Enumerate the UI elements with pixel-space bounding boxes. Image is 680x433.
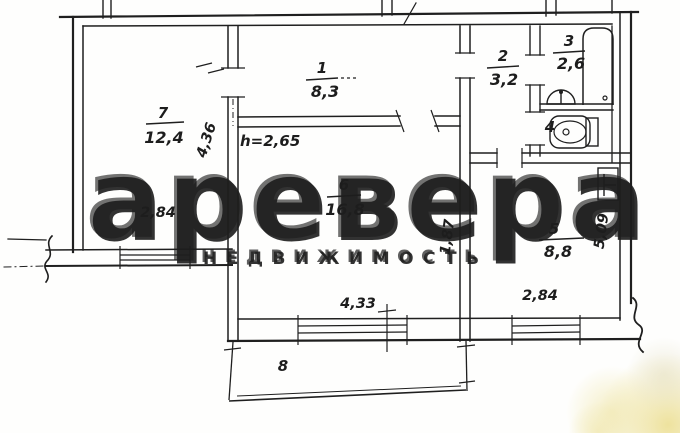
floor-plan-scan: 7 12,4 1 8,3 2 3,2 3 2,6 4 6 16,8 5 8,8 … [0,0,680,433]
dim-room5-width: 2,84 [522,288,558,304]
room2-number: 2 [498,47,508,65]
watermark: аревера аревера НЕДВИЖИМОСТЬ НЕДВИЖИМОСТ… [85,134,650,269]
room1-number: 1 [317,59,327,77]
watermark-caption: НЕДВИЖИМОСТЬ [201,247,487,267]
room3-number: 3 [564,32,574,50]
room7-number: 7 [158,104,169,122]
room1-area: 8,3 [311,82,339,101]
floor-plan-svg: 7 12,4 1 8,3 2 3,2 3 2,6 4 6 16,8 5 8,8 … [0,0,680,433]
watermark-logo: аревера [85,134,647,264]
balcony-number: 8 [278,357,288,375]
room3-area: 2,6 [557,54,585,73]
room2-area: 3,2 [490,70,518,89]
dim-room6-width: 4,33 [339,296,376,312]
